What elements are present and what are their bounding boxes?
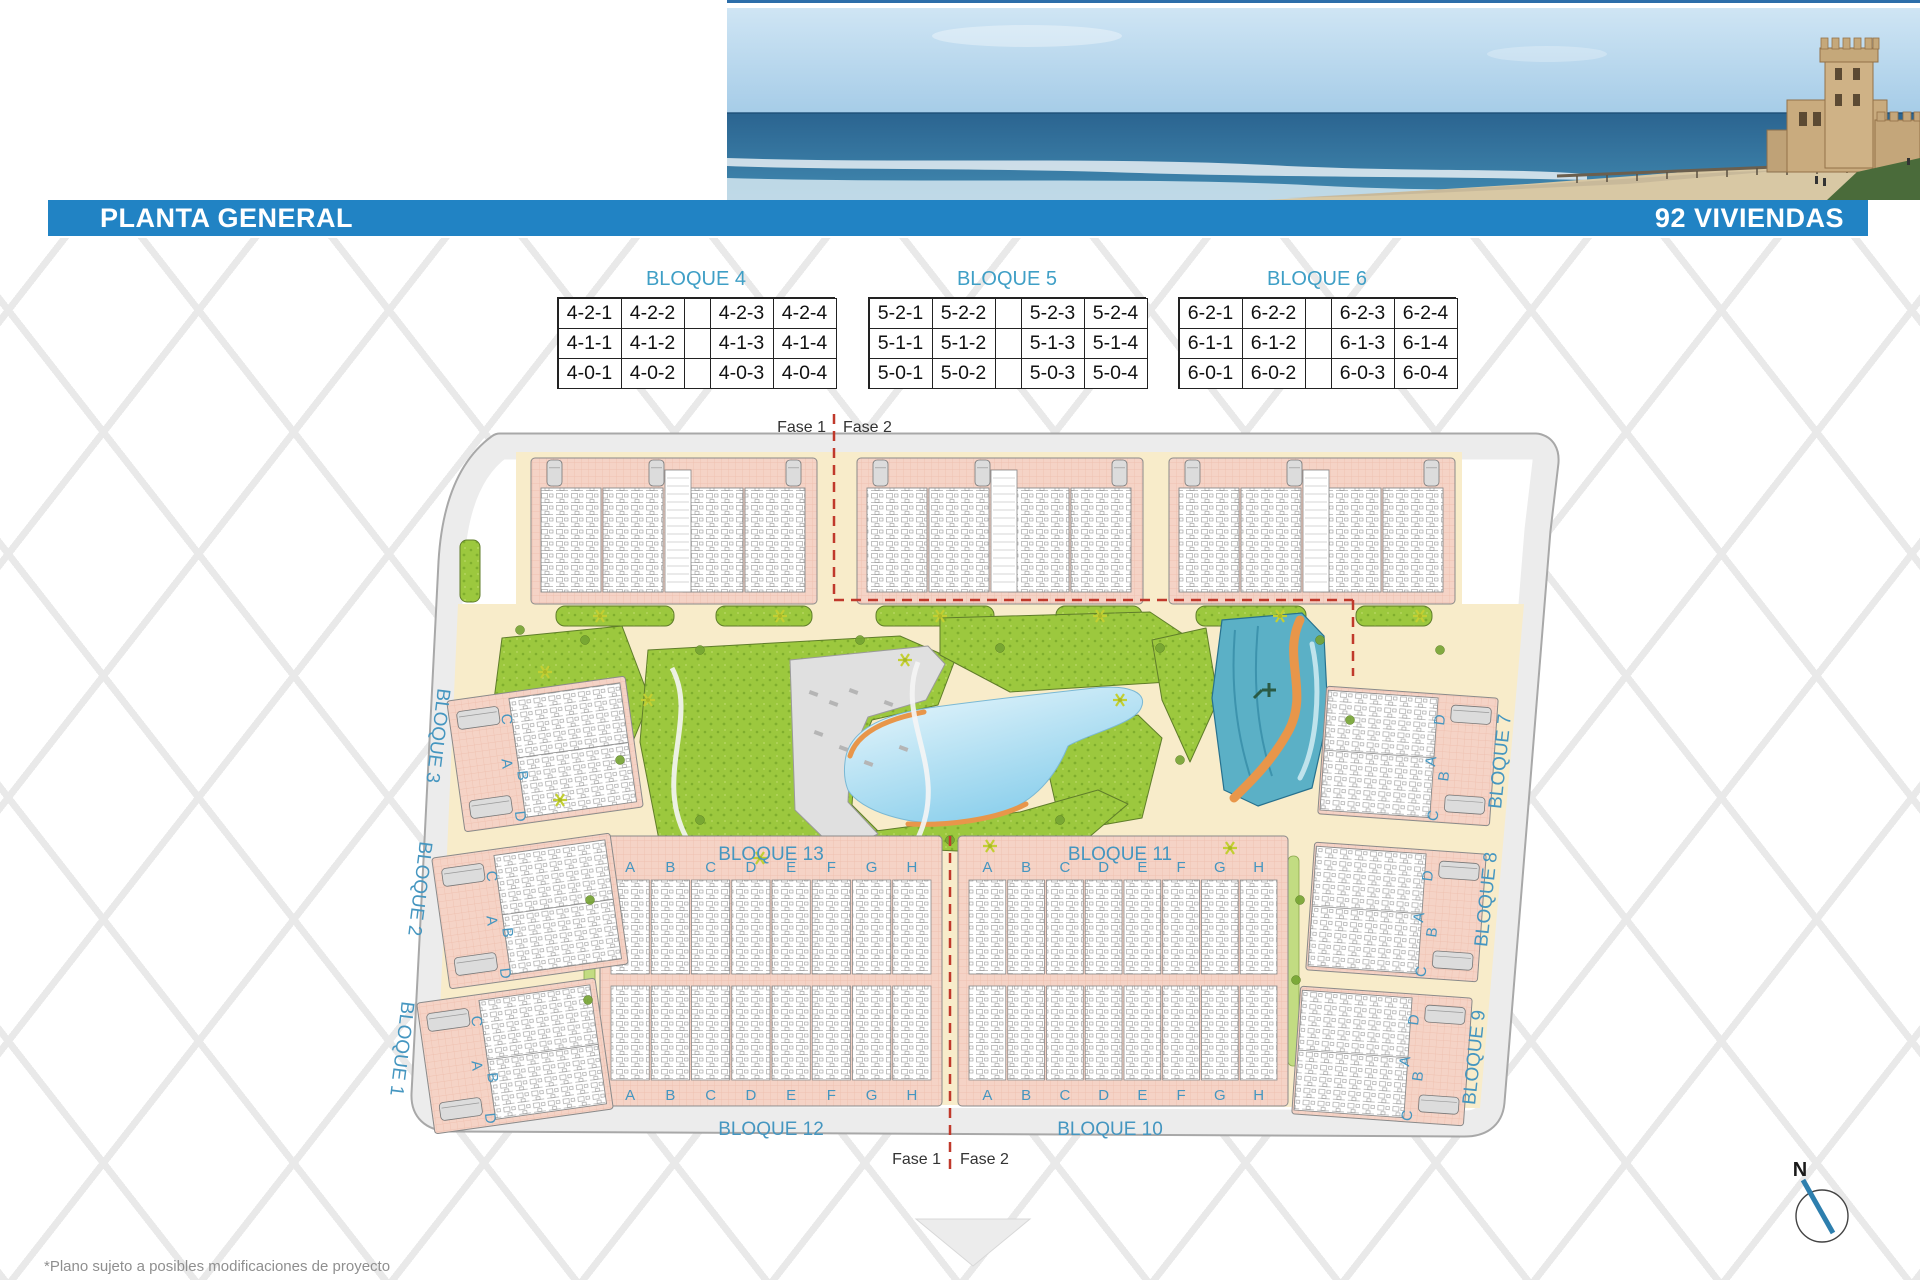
car-icon <box>1418 1095 1459 1115</box>
unit-letter: F <box>827 1087 836 1104</box>
unit-plan <box>812 880 850 974</box>
unit-plan <box>1124 986 1161 1080</box>
unit-letter: D <box>1098 1087 1109 1104</box>
left-side-block: CABD <box>447 676 644 832</box>
tree-icon <box>586 896 595 905</box>
unit-plan <box>969 880 1006 974</box>
unit-plan <box>853 986 891 1080</box>
unit-plan <box>1179 488 1239 592</box>
label-bloque-11: BLOQUE 11 <box>1068 844 1172 865</box>
unit-plan <box>893 880 931 974</box>
unit-plan <box>1202 986 1239 1080</box>
unit-letter: H <box>906 1087 917 1104</box>
tree-icon <box>1056 816 1065 825</box>
tree-icon <box>1346 716 1355 725</box>
unit-plan <box>772 986 810 1080</box>
unit-plan <box>732 986 770 1080</box>
unit-plan <box>1071 488 1131 592</box>
side-letter: C <box>482 870 500 883</box>
unit-letter: G <box>866 1087 878 1104</box>
unit-plan <box>603 488 663 592</box>
unit-letter: C <box>705 1087 716 1104</box>
car-icon <box>1424 1005 1465 1025</box>
unit-plan <box>1321 488 1381 592</box>
unit-letter: H <box>1253 859 1264 876</box>
side-letter: B <box>498 927 516 939</box>
left-side-block: CABD <box>432 833 629 989</box>
car-icon <box>1438 861 1479 881</box>
car-icon <box>1450 705 1491 725</box>
unit-letter: D <box>745 1087 756 1104</box>
unit-plan <box>1240 986 1277 1080</box>
unit-letter: F <box>1177 859 1186 876</box>
right-side-block: DABC <box>1306 842 1487 982</box>
fase2-bottom: Fase 2 <box>960 1151 1009 1168</box>
site-plan: AABBCCDDEEFFGGHHAABBCCDDEEFFGGHHCABDCABD… <box>0 0 1920 1280</box>
unit-plan <box>1163 986 1200 1080</box>
unit-plan <box>683 488 743 592</box>
fase1-bottom: Fase 1 <box>892 1151 941 1168</box>
tree-icon <box>516 626 525 635</box>
tree-icon <box>1296 896 1305 905</box>
unit-plan <box>651 880 689 974</box>
brochure-page: PLANTA GENERAL 92 VIVIENDAS BLOQUE 44-2-… <box>0 0 1920 1280</box>
top-building-group <box>857 458 1143 604</box>
unit-plan <box>541 488 601 592</box>
car-icon <box>1185 460 1200 486</box>
unit-plan <box>1163 880 1200 974</box>
disclaimer-text: *Plano sujeto a posibles modificaciones … <box>44 1258 390 1275</box>
unit-letter: F <box>1177 1087 1186 1104</box>
hatch-triangle <box>916 1219 1030 1266</box>
side-letter: C <box>467 1015 485 1028</box>
label-bloque-13: BLOQUE 13 <box>718 844 824 865</box>
car-icon <box>1444 795 1485 815</box>
car-icon <box>1287 460 1302 486</box>
unit-plan <box>1085 986 1122 1080</box>
unit-letter: G <box>1214 1087 1226 1104</box>
unit-plan <box>969 986 1006 1080</box>
side-letter: A <box>497 758 515 770</box>
side-letter: B <box>483 1072 501 1084</box>
tree-icon <box>856 636 865 645</box>
right-side-block: DABC <box>1292 986 1473 1126</box>
top-building-group <box>531 458 817 604</box>
unit-plan <box>812 986 850 1080</box>
side-letter: D <box>496 967 514 980</box>
unit-letter: G <box>866 859 878 876</box>
unit-letter: A <box>625 859 635 876</box>
fase1-top: Fase 1 <box>777 419 826 436</box>
unit-letter: H <box>1253 1087 1264 1104</box>
unit-plan <box>1047 880 1084 974</box>
bottom-building-strip: AABBCCDDEEFFGGHH <box>958 836 1288 1106</box>
unit-plan <box>651 986 689 1080</box>
unit-plan <box>1047 986 1084 1080</box>
compass-north-label: N <box>1793 1159 1807 1181</box>
unit-letter: A <box>625 1087 635 1104</box>
unit-plan <box>692 986 730 1080</box>
unit-plan <box>1383 488 1443 592</box>
unit-plan <box>1085 880 1122 974</box>
car-icon <box>975 460 990 486</box>
tree-icon <box>1436 646 1445 655</box>
side-letter: D <box>481 1112 499 1125</box>
car-icon <box>1432 951 1473 971</box>
car-icon <box>1112 460 1127 486</box>
tree-icon <box>584 996 593 1005</box>
unit-plan <box>1241 488 1301 592</box>
right-side-block: DABC <box>1318 686 1499 826</box>
unit-letter: B <box>665 859 675 876</box>
unit-letter: A <box>982 859 992 876</box>
label-bloque-10: BLOQUE 10 <box>1057 1119 1163 1140</box>
river-feature <box>1212 613 1328 806</box>
unit-plan <box>867 488 927 592</box>
unit-letter: A <box>982 1087 992 1104</box>
tree-icon <box>1176 756 1185 765</box>
tree-icon <box>616 756 625 765</box>
bottom-building-strip: AABBCCDDEEFFGGHH <box>600 836 942 1106</box>
car-icon <box>1424 460 1439 486</box>
unit-letter: C <box>1059 1087 1070 1104</box>
unit-plan <box>772 880 810 974</box>
car-icon <box>649 460 664 486</box>
unit-plan <box>732 880 770 974</box>
tree-icon <box>696 816 705 825</box>
unit-plan <box>1008 986 1045 1080</box>
unit-letter: E <box>1137 1087 1147 1104</box>
car-icon <box>786 460 801 486</box>
unit-plan <box>929 488 989 592</box>
tree-icon <box>696 646 705 655</box>
unit-plan <box>1009 488 1069 592</box>
fase2-top: Fase 2 <box>843 419 892 436</box>
side-letter: C <box>497 713 515 726</box>
tree-icon <box>1156 644 1165 653</box>
unit-letter: E <box>786 1087 796 1104</box>
unit-plan <box>1202 880 1239 974</box>
label-bloque-12: BLOQUE 12 <box>718 1119 824 1140</box>
side-letter: D <box>511 810 529 823</box>
side-letter: A <box>467 1060 485 1072</box>
unit-letter: B <box>1021 859 1031 876</box>
top-building-group <box>1169 458 1455 604</box>
car-icon <box>873 460 888 486</box>
tree-icon <box>581 636 590 645</box>
unit-letter: H <box>906 859 917 876</box>
tree-icon <box>1316 636 1325 645</box>
unit-letter: G <box>1214 859 1226 876</box>
unit-plan <box>611 986 649 1080</box>
unit-plan <box>853 880 891 974</box>
unit-letter: C <box>705 859 716 876</box>
unit-plan <box>1008 880 1045 974</box>
unit-plan <box>1240 880 1277 974</box>
unit-plan <box>1124 880 1161 974</box>
unit-plan <box>893 986 931 1080</box>
unit-letter: B <box>665 1087 675 1104</box>
unit-letter: B <box>1021 1087 1031 1104</box>
unit-letter: F <box>827 859 836 876</box>
tree-icon <box>996 644 1005 653</box>
side-letter: A <box>482 915 500 927</box>
unit-plan <box>745 488 805 592</box>
unit-plan <box>692 880 730 974</box>
compass: N <box>1793 1159 1848 1242</box>
car-icon <box>547 460 562 486</box>
side-letter: B <box>513 770 531 782</box>
tree-icon <box>1292 976 1301 985</box>
